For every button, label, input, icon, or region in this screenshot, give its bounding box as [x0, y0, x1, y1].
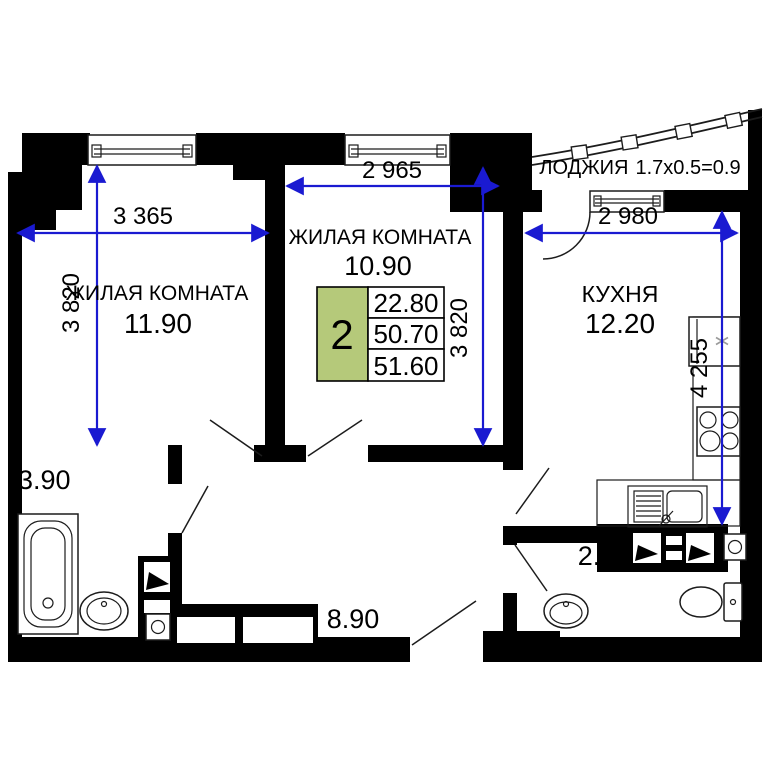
- room-area-living2: 10.90: [344, 251, 412, 281]
- floor-plan: 3 365 3 820 2 965 3 820 2 980 4 255 ЖИЛА…: [0, 0, 768, 768]
- room-area-hallway: 8.90: [327, 604, 380, 634]
- dim-label-kitchen-height: 4 255: [686, 338, 713, 398]
- riser-box-bathroom-icon: [146, 614, 170, 640]
- riser-box-kitchen-icon: [724, 534, 746, 560]
- built-in-closets: [177, 617, 313, 643]
- dim-label-living2-height: 3 820: [446, 298, 473, 358]
- room-area-kitchen: 12.20: [585, 308, 655, 339]
- apartment-info-table: 2 22.80 50.70 51.60: [317, 287, 444, 381]
- living-area-value: 22.80: [373, 288, 438, 318]
- wc-sink-icon: [544, 594, 588, 628]
- loggia-name: ЛОДЖИЯ: [539, 157, 628, 179]
- room-label-kitchen: КУХНЯ: [582, 281, 659, 307]
- room-area-bathroom: 3.90: [18, 465, 71, 495]
- floor-plan-canvas: 3 365 3 820 2 965 3 820 2 980 4 255 ЖИЛА…: [0, 0, 768, 768]
- dim-label-living2-width: 2 965: [362, 157, 422, 184]
- room-label-loggia: ЛОДЖИЯ1.7x0.5=0.9: [539, 157, 740, 179]
- window-living1-icon: [88, 135, 196, 165]
- room-area-living1: 11.90: [124, 308, 192, 339]
- toilet-icon: [680, 583, 742, 621]
- room-label-living1: ЖИЛАЯ КОМНАТА: [66, 282, 249, 305]
- room-area-wc: 2.90: [578, 541, 631, 571]
- bathtub-icon: [18, 514, 78, 634]
- room-label-living2: ЖИЛАЯ КОМНАТА: [289, 226, 472, 249]
- dim-label-kitchen-width: 2 980: [598, 203, 658, 230]
- loggia-size-formula: 1.7x0.5=0.9: [635, 157, 740, 179]
- dim-label-living1-width: 3 365: [113, 203, 173, 230]
- vent-shaft-bathroom-icon: [144, 562, 170, 613]
- area-without-loggia-value: 50.70: [373, 319, 438, 349]
- room-count-value: 2: [330, 311, 353, 358]
- stove-icon: [697, 407, 740, 456]
- total-area-value: 51.60: [373, 351, 438, 381]
- bathroom-sink-icon: [80, 592, 128, 630]
